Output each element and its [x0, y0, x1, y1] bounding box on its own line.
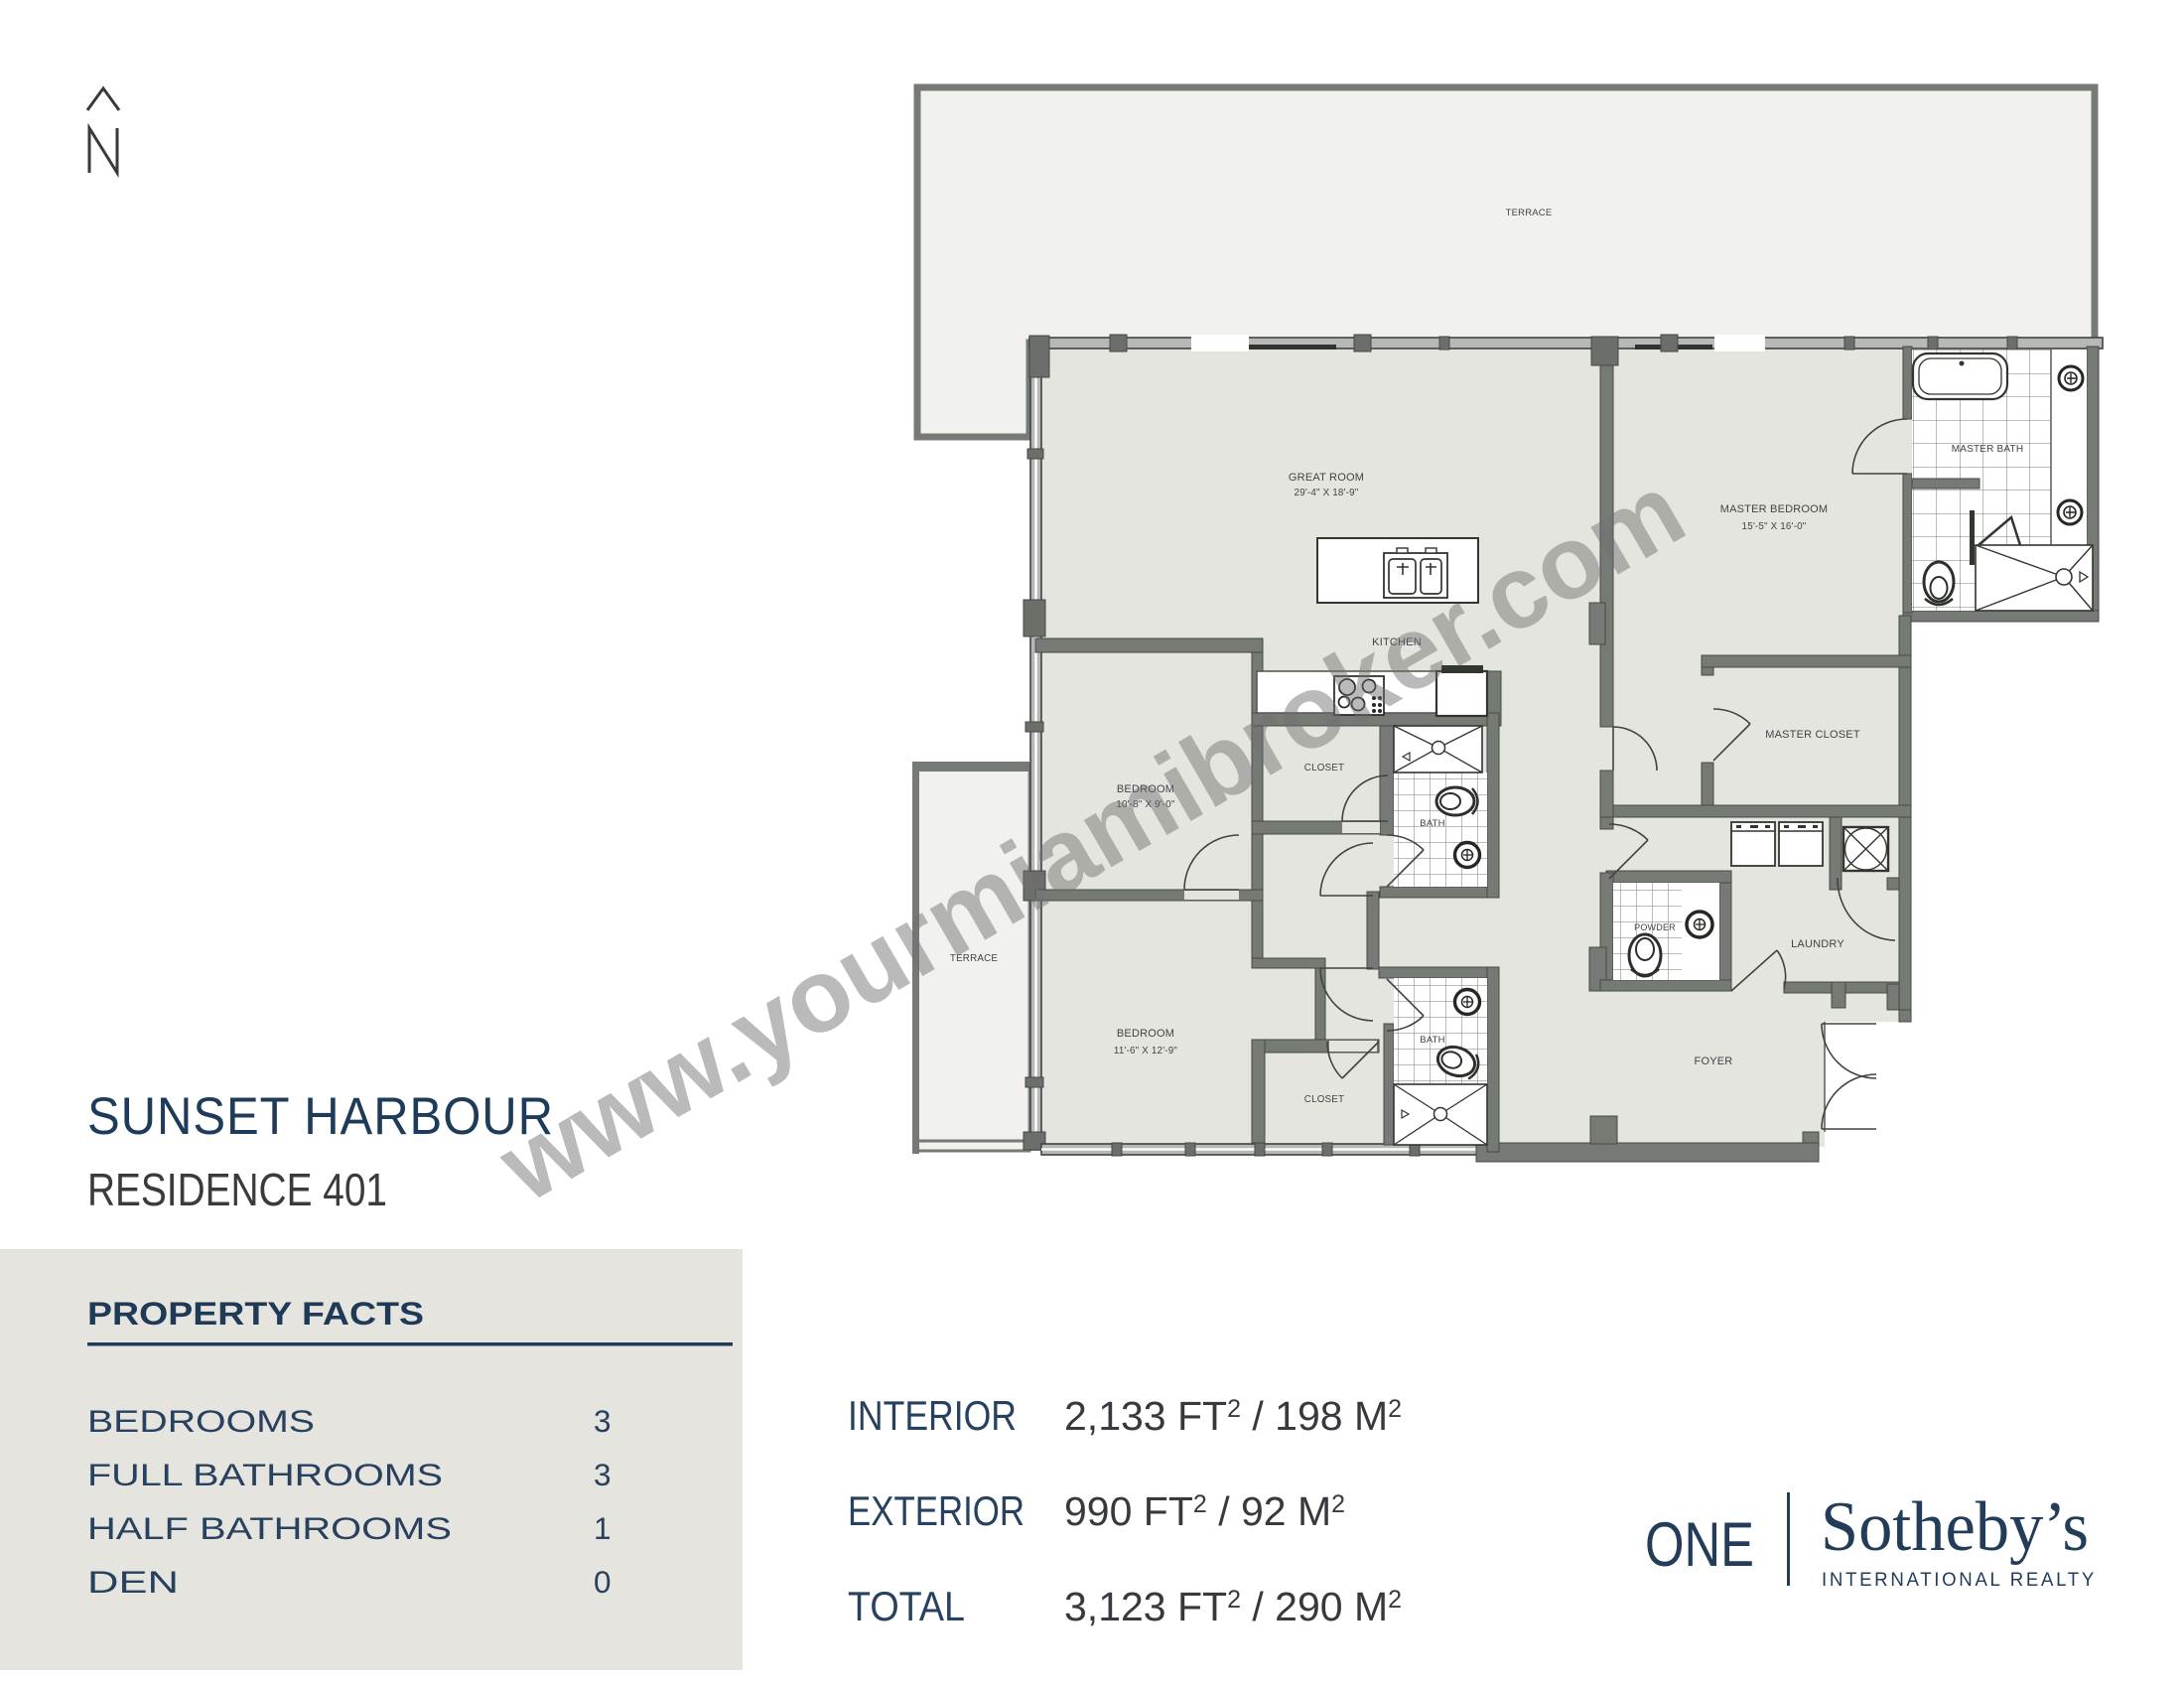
svg-text:MASTER BEDROOM: MASTER BEDROOM: [1720, 503, 1829, 515]
svg-text:EXTERIOR: EXTERIOR: [848, 1487, 1024, 1534]
svg-text:INTERNATIONAL REALTY: INTERNATIONAL REALTY: [1822, 1569, 2097, 1591]
svg-text:DEN: DEN: [87, 1564, 179, 1600]
svg-text:ONE: ONE: [1645, 1510, 1754, 1580]
svg-text:BEDROOMS: BEDROOMS: [87, 1403, 315, 1439]
svg-text:BATH: BATH: [1420, 1035, 1444, 1046]
svg-text:3: 3: [594, 1403, 612, 1439]
svg-text:HALF BATHROOMS: HALF BATHROOMS: [87, 1510, 452, 1546]
svg-text:FULL BATHROOMS: FULL BATHROOMS: [87, 1457, 443, 1492]
svg-text:15'-5" X 16'-0": 15'-5" X 16'-0": [1742, 521, 1807, 532]
svg-text:MASTER CLOSET: MASTER CLOSET: [1765, 729, 1860, 741]
svg-text:POWDER: POWDER: [1634, 922, 1676, 932]
svg-text:PROPERTY FACTS: PROPERTY FACTS: [87, 1296, 424, 1332]
svg-text:TERRACE: TERRACE: [1506, 208, 1553, 218]
svg-text:LAUNDRY: LAUNDRY: [1791, 938, 1844, 950]
svg-text:FOYER: FOYER: [1695, 1055, 1733, 1067]
svg-text:29'-4" X 18'-9": 29'-4" X 18'-9": [1295, 488, 1359, 498]
svg-text:SUNSET HARBOUR: SUNSET HARBOUR: [87, 1087, 554, 1146]
svg-text:11'-6" X 12'-9": 11'-6" X 12'-9": [1114, 1046, 1177, 1056]
svg-text:1: 1: [594, 1510, 612, 1546]
svg-text:TOTAL: TOTAL: [848, 1583, 965, 1629]
svg-text:3: 3: [594, 1457, 612, 1492]
svg-text:MASTER BATH: MASTER BATH: [1952, 444, 2024, 455]
svg-text:BATH: BATH: [1420, 818, 1444, 829]
svg-text:GREAT ROOM: GREAT ROOM: [1289, 472, 1364, 484]
svg-text:CLOSET: CLOSET: [1304, 1094, 1344, 1105]
svg-text:RESIDENCE 401: RESIDENCE 401: [87, 1164, 387, 1215]
svg-text:0: 0: [594, 1564, 612, 1600]
svg-text:BEDROOM: BEDROOM: [1117, 1028, 1174, 1040]
svg-text:Sotheby’s: Sotheby’s: [1821, 1488, 2089, 1566]
svg-text:INTERIOR: INTERIOR: [848, 1392, 1017, 1439]
